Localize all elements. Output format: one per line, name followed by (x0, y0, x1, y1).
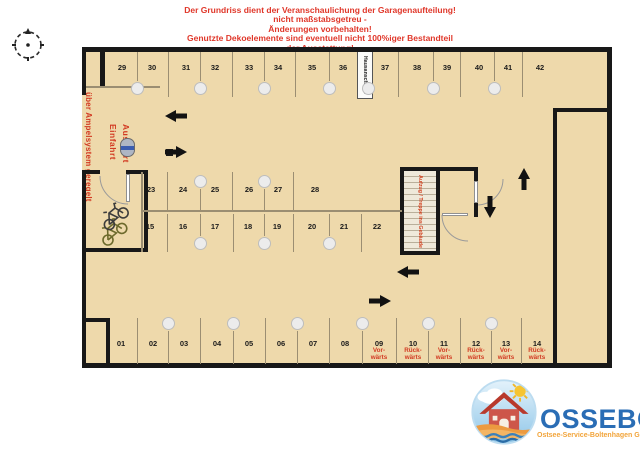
space-divider (329, 214, 330, 236)
space-divider (264, 189, 265, 210)
parking-direction-label: Vor- wärts (428, 347, 460, 361)
direction-arrow (484, 196, 496, 218)
garage-floor (82, 47, 612, 368)
wall (82, 47, 612, 52)
space-divider (428, 331, 429, 364)
pillar (131, 82, 144, 95)
parking-space-label: 15 (139, 222, 161, 231)
parking-space-label: 41 (497, 63, 519, 72)
wall (82, 170, 86, 368)
parking-direction-label: Rück- wärts (397, 347, 429, 361)
parking-space-label: 36 (332, 63, 354, 72)
company-logo-emblem (470, 378, 538, 446)
parking-space-label: 03 (173, 339, 195, 348)
compass-icon (10, 27, 46, 63)
space-divider (293, 172, 294, 210)
barrier-band (121, 146, 135, 150)
space-divider (460, 52, 461, 97)
wall (436, 167, 440, 255)
parking-space-label: 33 (238, 63, 260, 72)
elevator-stairs-label: Aufzug / Treppe ins Gebäude (417, 175, 423, 248)
pillar (291, 317, 304, 330)
parking-direction-label: Rück- wärts (521, 347, 553, 361)
wall (86, 248, 148, 252)
parking-space-label: 07 (302, 339, 324, 348)
lane-line (86, 86, 160, 88)
pillar (323, 82, 336, 95)
space-divider (362, 331, 363, 364)
space-divider (200, 189, 201, 210)
space-divider (168, 52, 169, 97)
parking-space-label: 02 (142, 339, 164, 348)
space-divider (494, 52, 495, 81)
pillar (194, 82, 207, 95)
space-divider (233, 331, 234, 364)
parking-space-label: 24 (172, 185, 194, 194)
pillar (194, 237, 207, 250)
space-divider (433, 52, 434, 81)
parking-space-label: 35 (301, 63, 323, 72)
parking-space-label: 01 (110, 339, 132, 348)
parking-direction-label: Vor- wärts (490, 347, 522, 361)
parking-direction-label: Vor- wärts (363, 347, 395, 361)
parking-space-label: 25 (204, 185, 226, 194)
door-leaf (474, 181, 478, 203)
parking-space-label: 34 (267, 63, 289, 72)
parking-space-label: 31 (175, 63, 197, 72)
parking-space-label: 04 (206, 339, 228, 348)
parking-space-label: 05 (238, 339, 260, 348)
barrier-icon (120, 138, 135, 157)
parking-space-label: 21 (333, 222, 355, 231)
space-divider (295, 52, 296, 97)
pillar (194, 175, 207, 188)
parking-space-label: 42 (529, 63, 551, 72)
space-divider (297, 331, 298, 364)
pillar (488, 82, 501, 95)
space-divider (329, 52, 330, 81)
parking-space-label: 28 (304, 185, 326, 194)
wall (474, 203, 478, 217)
space-divider (396, 318, 397, 364)
parking-space-label: 08 (334, 339, 356, 348)
wall (553, 108, 557, 367)
disclaimer-text: Der Grundriss dient der Veranschaulichun… (120, 6, 520, 53)
parking-space-label: 26 (238, 185, 260, 194)
pillar (356, 317, 369, 330)
space-divider (264, 52, 265, 81)
pillar (162, 317, 175, 330)
parking-space-label: 37 (374, 63, 396, 72)
logo-subtitle: Ostsee-Service-Boltenhagen GmbH (537, 432, 640, 439)
lane-line (142, 210, 402, 212)
parking-space-label: 32 (204, 63, 226, 72)
wall (557, 108, 607, 112)
parking-space-label: 39 (436, 63, 458, 72)
parking-space-label: 29 (111, 63, 133, 72)
space-divider (329, 318, 330, 364)
parking-space-label: 18 (237, 222, 259, 231)
pillar (227, 317, 240, 330)
parking-space-label: 06 (270, 339, 292, 348)
wall (474, 167, 478, 181)
direction-arrow (397, 266, 419, 278)
direction-arrow (165, 146, 187, 158)
space-divider (137, 52, 138, 81)
space-divider (232, 172, 233, 210)
door-leaf (126, 174, 130, 202)
bicycles-icon (88, 202, 142, 248)
lane-line (141, 172, 143, 252)
elevator-stairs-label-wrap: Aufzug / Treppe ins Gebäude (404, 171, 436, 251)
space-divider (200, 318, 201, 364)
space-divider (200, 214, 201, 236)
space-divider (491, 331, 492, 364)
parking-direction-label: Rück- wärts (460, 347, 492, 361)
pillar (422, 317, 435, 330)
parking-space-label: 16 (172, 222, 194, 231)
space-divider (293, 214, 294, 252)
pillar (427, 82, 440, 95)
pillar (258, 175, 271, 188)
wall (86, 170, 100, 174)
parking-space-label: 20 (301, 222, 323, 231)
parking-space-label: 17 (204, 222, 226, 231)
parking-space-label: 38 (406, 63, 428, 72)
space-divider (137, 318, 138, 364)
parking-space-label: 30 (141, 63, 163, 72)
space-divider (521, 318, 522, 364)
direction-arrow (165, 110, 187, 122)
space-divider (522, 52, 523, 97)
space-divider (168, 331, 169, 364)
space-divider (233, 214, 234, 252)
pillar (258, 82, 271, 95)
space-divider (398, 52, 399, 97)
pillar (323, 237, 336, 250)
door-leaf (442, 213, 468, 216)
direction-arrow (518, 168, 530, 190)
space-divider (264, 214, 265, 236)
space-divider (232, 52, 233, 97)
logo-title: OSSEBO (540, 404, 640, 435)
pillar (362, 82, 375, 95)
direction-arrow (369, 295, 391, 307)
parking-space-label: 40 (468, 63, 490, 72)
space-divider (361, 214, 362, 252)
space-divider (460, 318, 461, 364)
parking-space-label: 22 (366, 222, 388, 231)
pillar (258, 237, 271, 250)
pillar (485, 317, 498, 330)
wall (100, 51, 105, 87)
space-divider (167, 214, 168, 252)
garage-floorplan-page: Der Grundriss dient der Veranschaulichun… (0, 0, 640, 453)
parking-space-label: 27 (267, 185, 289, 194)
space-divider (200, 52, 201, 81)
space-divider (265, 318, 266, 364)
parking-space-label: 23 (140, 185, 162, 194)
wall (82, 363, 612, 368)
space-divider (167, 172, 168, 210)
parking-space-label: 19 (266, 222, 288, 231)
wall (400, 251, 440, 255)
wall (607, 47, 612, 368)
